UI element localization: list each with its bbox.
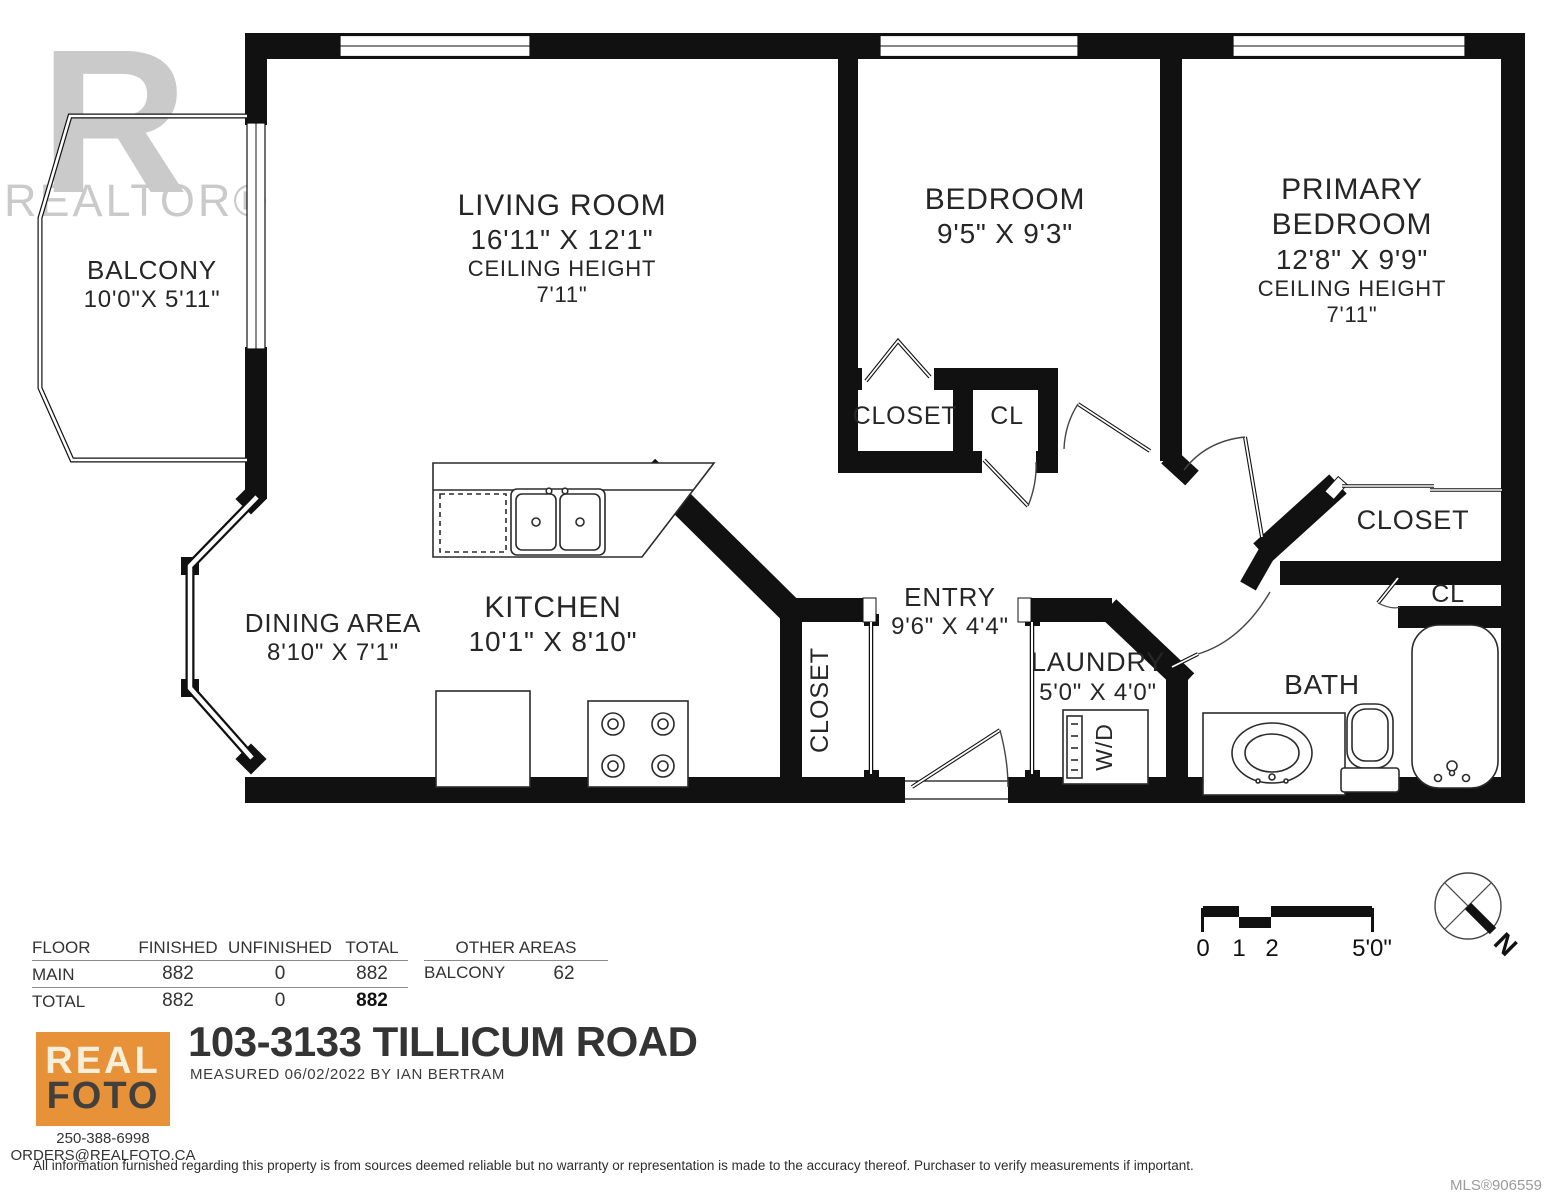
bath-cl-name: CL [1431, 580, 1465, 610]
areas-table: FLOOR FINISHED UNFINISHED TOTAL MAIN 882… [32, 936, 408, 1014]
realfoto-logo: REAL FOTO [36, 1032, 170, 1126]
bedroom-cl-name: CL [990, 402, 1024, 432]
floorplan-page: { "watermark": {"big": "R", "text": "REA… [0, 0, 1556, 1200]
areas-row-main: MAIN 882 0 882 [32, 961, 408, 988]
toilet [1341, 704, 1399, 792]
entry-dims: 9'6" X 4'4" [891, 613, 1009, 641]
col-unfinished: UNFINISHED [224, 938, 336, 958]
fridge [436, 691, 530, 787]
room-label-primary-closet: CLOSET [1357, 505, 1470, 537]
balcony-name: BALCONY [84, 255, 221, 286]
living-ceiling-value: 7'11" [458, 282, 667, 308]
other-balcony-value: 62 [520, 963, 608, 985]
room-label-dining: DINING AREA 8'10" X 7'1" [245, 608, 421, 667]
primary-name-1: PRIMARY [1258, 172, 1446, 207]
room-label-kitchen: KITCHEN 10'1" X 8'10" [469, 590, 638, 658]
other-areas-row: BALCONY 62 [424, 961, 608, 987]
balcony-dims: 10'0"X 5'11" [84, 286, 221, 314]
diagonal-walls [646, 456, 1338, 682]
room-label-bath-cl: CL [1431, 580, 1465, 610]
kitchen-name: KITCHEN [469, 590, 638, 625]
measured-line: MEASURED 06/02/2022 BY IAN BERTRAM [190, 1066, 505, 1083]
bedroom-closet-name: CLOSET [853, 402, 958, 432]
entry-name: ENTRY [891, 582, 1009, 613]
primary-ceiling-label: CEILING HEIGHT [1258, 276, 1446, 302]
room-label-living: LIVING ROOM 16'11" X 12'1" CEILING HEIGH… [458, 188, 667, 308]
scale-tick-0: 0 [1196, 935, 1209, 962]
scale-tick-1: 1 [1232, 935, 1245, 962]
entry-closet-label: CLOSET [806, 647, 834, 753]
compass-north-label: N [1488, 927, 1523, 962]
primary-closet-name: CLOSET [1357, 505, 1470, 537]
room-label-balcony: BALCONY 10'0"X 5'11" [84, 255, 221, 314]
main-finished: 882 [132, 963, 224, 985]
main-floor: MAIN [32, 965, 132, 985]
other-areas-table: OTHER AREAS BALCONY 62 [424, 936, 608, 987]
main-total: 882 [336, 963, 408, 985]
bedroom-name: BEDROOM [925, 182, 1086, 217]
primary-name-2: BEDROOM [1258, 207, 1446, 242]
total-finished: 882 [132, 990, 224, 1012]
realfoto-logo-line1: REAL [45, 1044, 160, 1079]
col-finished: FINISHED [132, 938, 224, 958]
main-unfinished: 0 [224, 963, 336, 985]
dining-dims: 8'10" X 7'1" [245, 639, 421, 667]
living-name: LIVING ROOM [458, 188, 667, 223]
room-label-bedroom-closet: CLOSET [853, 402, 958, 432]
total-total: 882 [336, 990, 408, 1012]
col-total: TOTAL [336, 938, 408, 958]
bath-vanity-sink [1203, 713, 1345, 795]
mls-number: MLS®906559 [1450, 1177, 1542, 1194]
room-label-bedroom-cl: CL [990, 402, 1024, 432]
scale-bar: 0 1 2 5'0" [1196, 906, 1392, 962]
phone-number: 250-388-6998 [6, 1130, 200, 1147]
primary-dims: 12'8" X 9'9" [1258, 243, 1446, 276]
bedroom-dims: 9'5" X 9'3" [925, 217, 1086, 250]
areas-header-row: FLOOR FINISHED UNFINISHED TOTAL [32, 936, 408, 961]
scale-tick-2: 2 [1265, 935, 1278, 962]
room-label-bath: BATH [1284, 668, 1360, 701]
room-label-laundry: LAUNDRY 5'0" X 4'0" [1031, 647, 1165, 707]
kitchen-sink [511, 488, 605, 555]
areas-row-total: TOTAL 882 0 882 [32, 988, 408, 1014]
room-label-primary: PRIMARY BEDROOM 12'8" X 9'9" CEILING HEI… [1258, 172, 1446, 328]
living-dims: 16'11" X 12'1" [458, 223, 667, 256]
dining-name: DINING AREA [245, 608, 421, 639]
disclaimer-text: All information furnished regarding this… [33, 1158, 1194, 1173]
primary-ceiling-value: 7'11" [1258, 302, 1446, 328]
stove [588, 701, 688, 787]
washer-dryer-label: W/D [1091, 723, 1117, 771]
laundry-name: LAUNDRY [1031, 647, 1165, 679]
bathtub [1412, 625, 1498, 788]
realfoto-logo-line2: FOTO [47, 1079, 160, 1114]
room-label-bedroom: BEDROOM 9'5" X 9'3" [925, 182, 1086, 250]
total-floor: TOTAL [32, 992, 132, 1012]
bath-name: BATH [1284, 668, 1360, 701]
other-areas-header: OTHER AREAS [424, 936, 608, 961]
other-balcony-name: BALCONY [424, 963, 520, 985]
laundry-dims: 5'0" X 4'0" [1031, 679, 1165, 707]
col-floor: FLOOR [32, 938, 132, 958]
room-label-entry: ENTRY 9'6" X 4'4" [891, 582, 1009, 641]
compass-icon: N [1435, 873, 1523, 962]
total-unfinished: 0 [224, 990, 336, 1012]
living-ceiling-label: CEILING HEIGHT [458, 256, 667, 282]
scale-tick-5: 5'0" [1352, 935, 1392, 962]
kitchen-dims: 10'1" X 8'10" [469, 625, 638, 658]
property-address-title: 103-3133 TILLICUM ROAD [188, 1018, 697, 1066]
